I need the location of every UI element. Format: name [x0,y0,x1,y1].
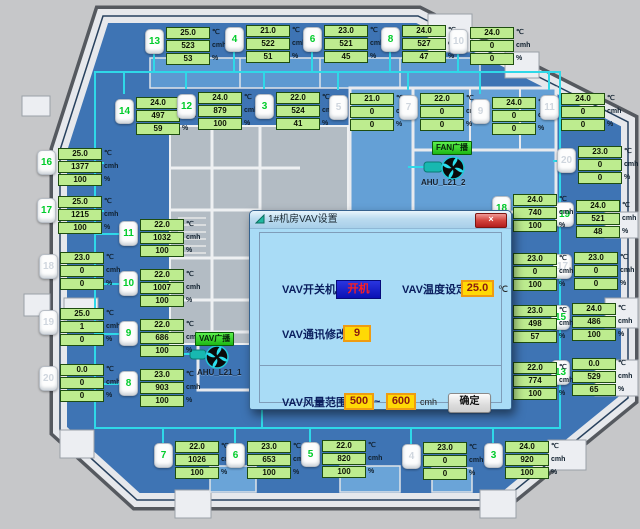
vav-unit-symbol: ℃ [624,147,632,157]
vav-value: 0 [420,119,464,131]
vav-diffuser-18[interactable]: 18 [39,254,58,279]
vav-unit-symbol: ℃ [559,306,567,316]
vav-value: 498 [513,318,557,330]
vav-value: 529 [572,371,616,383]
vav-value: 521 [324,38,368,50]
vav-value: 23.0 [423,442,467,454]
airflow-max-value[interactable]: 600 [386,393,416,410]
vav-diffuser-9[interactable]: 9 [119,321,138,346]
vav-diffuser-10[interactable]: 10 [449,29,468,54]
vav-unit-symbol: cmh [622,214,636,224]
vav-unit-symbol: cmh [620,266,634,276]
vav-value: 24.0 [576,200,620,212]
vav-diffuser-5[interactable]: 5 [301,442,320,467]
vav-unit-symbol: % [559,332,565,342]
vav-diffuser-6[interactable]: 6 [303,27,322,52]
vav-value: 100 [505,467,549,479]
vav-value: 1007 [140,282,184,294]
fan-broadcast-button-1[interactable]: FAN广播 [432,141,472,155]
vav-value: 0 [350,119,394,131]
vav-unit-symbol: cmh [624,160,638,170]
vav-unit-symbol: % [559,389,565,399]
vav-value: 21.0 [246,25,290,37]
vav-value: 1032 [140,232,184,244]
vav-unit-symbol: % [622,227,628,237]
vav-unit-symbol: ℃ [186,220,194,230]
vav-value: 0 [492,110,536,122]
vav-value: 0 [350,106,394,118]
vav-unit-symbol: % [186,346,192,356]
vav-value: 24.0 [136,97,180,109]
vav-unit-symbol: % [368,467,374,477]
vav-unit-symbol: ℃ [292,26,300,36]
vav-value: 0 [574,278,618,290]
vav-value: 23.0 [247,441,291,453]
vav-unit-symbol: ℃ [368,441,376,451]
vav-diffuser-20[interactable]: 20 [39,366,58,391]
vav-diffuser-7[interactable]: 7 [154,443,173,468]
vav-value: 23.0 [513,305,557,317]
vav-diffuser-11[interactable]: 11 [540,95,559,120]
vav-value: 51 [246,51,290,63]
vav-value: 100 [572,329,616,341]
vav-value: 100 [58,174,102,186]
vav-unit-symbol: cmh [559,208,573,218]
scada-floorplan-screen: 1325.0℃523cmh53%421.0℃522cmh51%623.0℃521… [0,0,640,529]
vav-unit-13: 130.0℃529cmh65% [572,358,632,397]
power-on-button[interactable]: 开机 [336,280,381,299]
vav-unit-13: 1325.0℃523cmh53% [166,27,226,66]
vav-unit-symbol: % [516,54,522,64]
vav-unit-symbol: ℃ [186,270,194,280]
vav-unit-5: 522.0℃820cmh100% [322,440,382,479]
vav-value: 23.0 [513,253,557,265]
vav-value: 22.0 [276,92,320,104]
vav-unit-symbol: ℃ [618,359,626,369]
vav-unit-symbol: % [618,385,624,395]
vav-unit-symbol: % [221,468,227,478]
vav-value: 1026 [175,454,219,466]
vav-unit-symbol: ℃ [469,443,477,453]
tilde: ~ [374,395,380,409]
vav-diffuser-19[interactable]: 19 [39,310,58,335]
app-icon [255,214,265,224]
vav-unit-symbol: cmh [618,372,632,382]
vav-value: 903 [140,382,184,394]
vav-unit-3: 322.0℃524cmh41% [276,92,336,131]
vav-unit-symbol: % [469,469,475,479]
vav-value: 24.0 [505,441,549,453]
vav-unit-4: 421.0℃522cmh51% [246,25,306,64]
vav-unit-3: 324.0℃920cmh100% [505,441,565,480]
vav-unit-symbol: % [396,120,402,130]
vav-value: 65 [572,384,616,396]
vav-value: 0 [470,40,514,52]
vav-unit-symbol: ℃ [106,253,114,263]
vav-unit-symbol: % [212,54,218,64]
vav-value: 521 [576,213,620,225]
vav-value: 0 [561,106,605,118]
vav-unit-symbol: cmh [607,107,621,117]
vav-diffuser-16[interactable]: 16 [37,150,56,175]
vav-value: 22.0 [175,441,219,453]
vav-value: 24.0 [492,97,536,109]
vav-value: 23.0 [578,146,622,158]
close-icon[interactable]: × [475,213,507,228]
vav-unit-19: 1924.0℃521cmh48% [576,200,636,239]
vav-value: 0 [470,53,514,65]
vav-unit-19: 1925.0℃1cmh0% [60,308,120,347]
vav-value: 527 [402,38,446,50]
vav-unit-symbol: % [104,223,110,233]
comm-label: VAV通讯修改 [282,328,347,342]
vav-value: 100 [58,222,102,234]
temp-setpoint-value[interactable]: 25.0 [461,280,494,297]
vav-value: 0 [578,159,622,171]
vav-unit-12: 1222.0℃774cmh100% [513,362,573,401]
vav-unit-symbol: % [293,468,299,478]
vav-unit-symbol: ℃ [618,304,626,314]
vav-value: 41 [276,118,320,130]
vav-unit-symbol: % [292,52,298,62]
vav-unit-18: 1823.0℃0cmh0% [60,252,120,291]
vav-unit-symbol: cmh [186,383,200,393]
vav-unit-symbol: % [106,335,112,345]
vav-value: 820 [322,453,366,465]
vav-value: 100 [140,295,184,307]
vav-unit-8: 823.0℃903cmh100% [140,369,200,408]
vav-value: 23.0 [60,252,104,264]
vav-value: 48 [576,226,620,238]
vav-unit-symbol: % [370,52,376,62]
vav-diffuser-12[interactable]: 12 [177,94,196,119]
vav-unit-9: 922.0℃686cmh100% [140,319,200,358]
vav-unit-symbol: ℃ [293,442,301,452]
vav-value: 100 [198,118,242,130]
vav-value: 686 [140,332,184,344]
vav-value: 100 [513,279,557,291]
vav-value: 522 [246,38,290,50]
airflow-range-label: VAV风量范围 [282,396,347,410]
ahu-label-2: AHU_L21_1 [197,368,241,377]
vav-diffuser-8[interactable]: 8 [119,371,138,396]
vav-value: 23.0 [140,369,184,381]
vav-diffuser-3[interactable]: 3 [255,94,274,119]
vav-value: 53 [166,53,210,65]
vav-diffuser-13[interactable]: 13 [145,29,164,54]
vav-value: 100 [175,467,219,479]
vav-value: 47 [402,51,446,63]
vav-value: 25.0 [58,148,102,160]
vav-value: 22.0 [140,219,184,231]
vav-unit-symbol: cmh [104,210,118,220]
vav-value: 22.0 [140,319,184,331]
switch-label: VAV开关机 [282,283,336,297]
vav-unit-symbol: ℃ [622,201,630,211]
vav-unit-17: 1725.0℃1215cmh100% [58,196,118,235]
vav-value: 24.0 [513,194,557,206]
vav-unit-symbol: ℃ [104,197,112,207]
vav-unit-symbol: ℃ [551,442,559,452]
vav-unit-4: 423.0℃0cmh0% [423,442,483,481]
vav-value: 100 [247,467,291,479]
vav-value: 0 [513,266,557,278]
vav-unit-symbol: ℃ [186,370,194,380]
vav-value: 24.0 [561,93,605,105]
vav-value: 100 [140,345,184,357]
dialog-title: 1#机房VAV设置 [268,214,338,226]
ahu-label-1: AHU_L21_2 [421,178,465,187]
vav-value: 0 [492,123,536,135]
vav-diffuser-4[interactable]: 4 [402,444,421,469]
vav-unit-symbol: % [624,173,630,183]
vav-diffuser-11[interactable]: 11 [119,221,138,246]
vav-value: 0.0 [60,364,104,376]
vav-unit-10: 1022.0℃1007cmh100% [140,269,200,308]
vav-diffuser-9[interactable]: 9 [471,99,490,124]
vav-value: 24.0 [402,25,446,37]
vav-diffuser-17[interactable]: 17 [37,198,56,223]
vav-diffuser-8[interactable]: 8 [381,27,400,52]
vav-unit-20: 2023.0℃0cmh0% [578,146,638,185]
vav-value: 100 [322,466,366,478]
vav-value: 920 [505,454,549,466]
vav-value: 497 [136,110,180,122]
vav-unit-symbol: ℃ [516,28,524,38]
vav-unit-symbol: % [551,468,557,478]
airflow-unit: cmh [420,397,437,408]
vav-value: 0 [420,106,464,118]
vav-unit-symbol: % [186,296,192,306]
vav-value: 524 [276,105,320,117]
vav-unit-symbol: ℃ [559,195,567,205]
vav-value: 100 [513,220,557,232]
vav-value: 1377 [58,161,102,173]
vav-value: 0 [60,377,104,389]
vav-unit-symbol: cmh [559,376,573,386]
vav-value: 0 [578,172,622,184]
dialog-panel: VAV开关机 开机 VAV温度设定 25.0 ℃ VAV通讯修改 9 VAV风量… [259,232,502,403]
vav-unit-symbol: cmh [368,454,382,464]
vav-unit-symbol: cmh [469,456,483,466]
vav-value: 25.0 [58,196,102,208]
temp-unit: ℃ [498,284,508,295]
vav-unit-symbol: ℃ [212,28,220,38]
vav-unit-symbol: % [559,221,565,231]
vav-value: 100 [140,395,184,407]
vav-unit-symbol: % [538,124,544,134]
vav-value: 1 [60,321,104,333]
vav-unit-16: 1625.0℃1377cmh100% [58,148,118,187]
vav-value: 24.0 [198,92,242,104]
vav-unit-symbol: cmh [551,455,565,465]
vav-unit-symbol: % [106,391,112,401]
vav-unit-symbol: % [559,280,565,290]
vav-diffuser-14[interactable]: 14 [115,99,134,124]
vav-value: 22.0 [140,269,184,281]
vav-unit-16: 1623.0℃0cmh100% [513,253,573,292]
vav-unit-symbol: cmh [186,283,200,293]
vav-value: 653 [247,454,291,466]
vav-diffuser-20[interactable]: 20 [557,148,576,173]
vav-value: 523 [166,40,210,52]
vav-unit-symbol: % [182,124,188,134]
vav-unit-symbol: % [106,279,112,289]
vav-value: 21.0 [350,93,394,105]
vav-unit-symbol: cmh [516,41,530,51]
vav-unit-symbol: % [618,330,624,340]
vav-unit-symbol: ℃ [244,93,252,103]
vav-value: 740 [513,207,557,219]
vav-unit-symbol: ℃ [559,254,567,264]
divider [260,365,501,366]
vav-value: 486 [572,316,616,328]
vav-value: 0 [423,455,467,467]
vav-unit-symbol: % [244,119,250,129]
vav-value: 100 [513,388,557,400]
vav-unit-symbol: ℃ [106,309,114,319]
vav-diffuser-7[interactable]: 7 [399,95,418,120]
vav-unit-symbol: cmh [104,162,118,172]
vav-value: 22.0 [513,362,557,374]
vav-unit-symbol: % [322,119,328,129]
vav-diffuser-5[interactable]: 5 [329,95,348,120]
vav-value: 774 [513,375,557,387]
vav-diffuser-10[interactable]: 10 [119,271,138,296]
vav-value: 23.0 [574,252,618,264]
vav-unit-11: 1122.0℃1032cmh100% [140,219,200,258]
vav-unit-symbol: cmh [559,267,573,277]
vav-unit-15: 1524.0℃486cmh100% [572,303,632,342]
vav-value: 0 [60,390,104,402]
vav-value: 22.0 [420,93,464,105]
vav-unit-12: 1224.0℃879cmh100% [198,92,258,131]
vav-unit-symbol: ℃ [559,363,567,373]
vav-value: 879 [198,105,242,117]
vav-value: 0 [60,334,104,346]
vav-value: 57 [513,331,557,343]
vav-unit-20: 200.0℃0cmh0% [60,364,120,403]
vav-value: 59 [136,123,180,135]
vav-unit-symbol: % [104,175,110,185]
vav-unit-10: 1024.0℃0cmh0% [470,27,530,66]
vav-value: 0 [574,265,618,277]
vav-value: 23.0 [324,25,368,37]
vav-unit-symbol: ℃ [186,320,194,330]
confirm-button[interactable]: 确定 [448,393,491,413]
vav-value: 0 [423,468,467,480]
vav-unit-symbol: % [620,279,626,289]
vav-unit-18: 1824.0℃740cmh100% [513,194,573,233]
vav-settings-dialog: 1#机房VAV设置 × VAV开关机 开机 VAV温度设定 25.0 ℃ VAV… [249,210,512,410]
vav-unit-17: 1723.0℃0cmh0% [574,252,634,291]
vav-unit-symbol: ℃ [370,26,378,36]
vav-unit-6: 623.0℃653cmh100% [247,441,307,480]
vav-diffuser-3[interactable]: 3 [484,443,503,468]
dialog-titlebar[interactable]: 1#机房VAV设置 × [250,211,511,229]
vav-value: 45 [324,51,368,63]
airflow-min-value[interactable]: 500 [344,393,374,410]
vav-value: 0 [561,119,605,131]
vav-value: 25.0 [166,27,210,39]
vav-unit-symbol: ℃ [106,365,114,375]
vav-value: 24.0 [470,27,514,39]
vav-unit-symbol: ℃ [620,253,628,263]
temp-setpoint-label: VAV温度设定 [402,283,467,297]
comm-address-value[interactable]: 9 [343,325,371,342]
vav-unit-6: 623.0℃521cmh45% [324,25,384,64]
vav-diffuser-6[interactable]: 6 [226,443,245,468]
vav-value: 0.0 [572,358,616,370]
vav-value: 1215 [58,209,102,221]
vav-unit-11: 1124.0℃0cmh0% [561,93,621,132]
vav-unit-symbol: % [607,120,613,130]
vav-value: 24.0 [572,303,616,315]
vav-unit-symbol: cmh [618,317,632,327]
fan-broadcast-button-2[interactable]: VAV广播 [195,332,234,346]
vav-value: 25.0 [60,308,104,320]
vav-unit-symbol: cmh [559,319,573,329]
vav-value: 0 [60,265,104,277]
vav-unit-14: 1423.0℃498cmh57% [513,305,573,344]
vav-value: 100 [140,245,184,257]
vav-diffuser-4[interactable]: 4 [225,27,244,52]
vav-unit-symbol: cmh [186,233,200,243]
vav-unit-symbol: % [186,396,192,406]
vav-unit-symbol: ℃ [607,94,615,104]
vav-value: 22.0 [322,440,366,452]
vav-value: 0 [60,278,104,290]
vav-unit-symbol: % [186,246,192,256]
vav-unit-symbol: ℃ [104,149,112,159]
